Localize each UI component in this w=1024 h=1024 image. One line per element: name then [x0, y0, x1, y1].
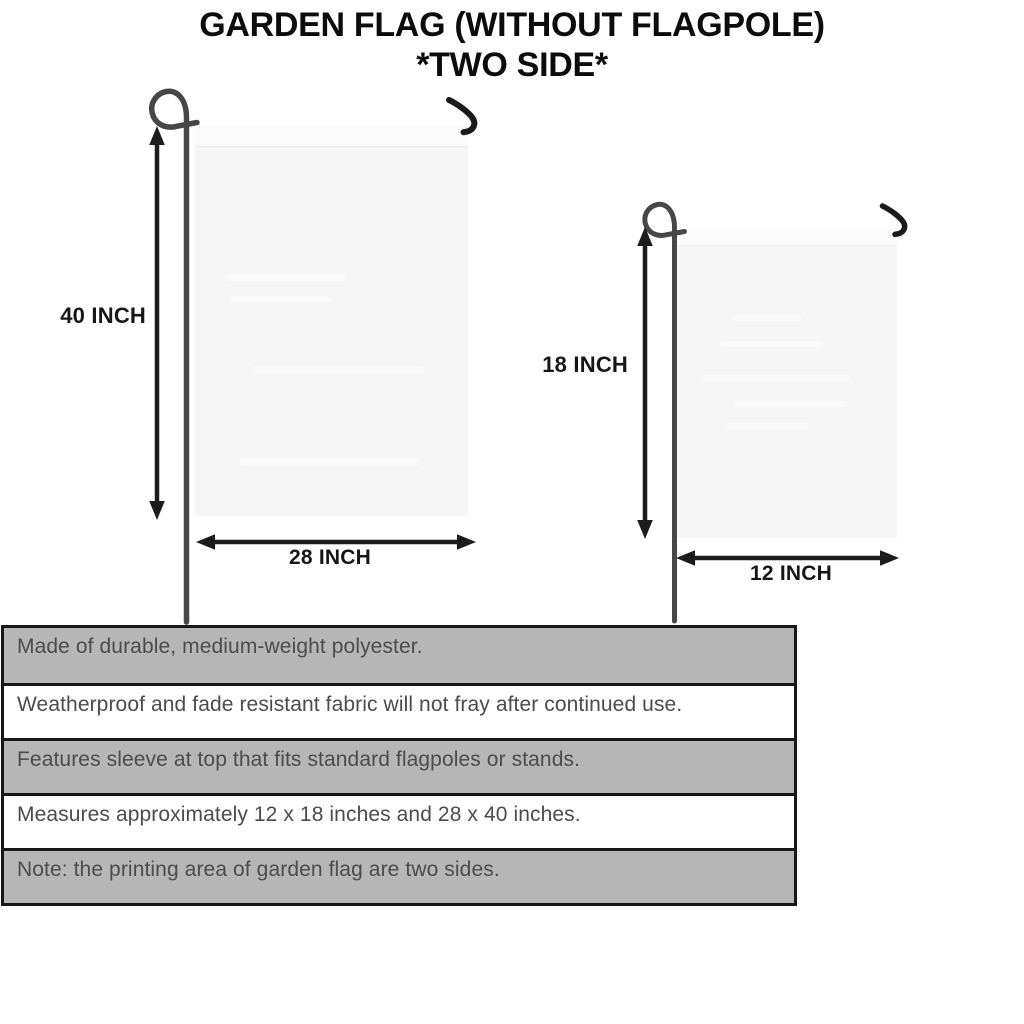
- page-title: GARDEN FLAG (WITHOUT FLAGPOLE) *TWO SIDE…: [0, 5, 1024, 85]
- small-flag-sleeve: [677, 229, 897, 246]
- small-flag: [677, 229, 897, 538]
- feature-row-text: Features sleeve at top that fits standar…: [17, 748, 580, 771]
- large-flag-sleeve: [195, 126, 468, 147]
- large-height-label: 40 INCH: [26, 303, 146, 329]
- flag-print-ghost: [239, 458, 419, 466]
- flag-print-ghost: [253, 366, 425, 373]
- small-width-label: 12 INCH: [691, 562, 891, 586]
- title-line2: *TWO SIDE*: [0, 45, 1024, 85]
- large-flag: [195, 126, 468, 516]
- flag-print-ghost: [701, 375, 851, 381]
- large-height-arrow: [149, 126, 165, 520]
- feature-row-text: Weatherproof and fade resistant fabric w…: [17, 693, 682, 716]
- large-flagpole: [152, 91, 197, 622]
- garden-flag-infographic: GARDEN FLAG (WITHOUT FLAGPOLE) *TWO SIDE…: [0, 0, 1024, 1024]
- flag-print-ghost: [225, 274, 345, 281]
- title-line1: GARDEN FLAG (WITHOUT FLAGPOLE): [0, 5, 1024, 45]
- features-table: Made of durable, medium-weight polyester…: [1, 625, 797, 906]
- feature-row-text: Note: the printing area of garden flag a…: [17, 858, 500, 881]
- feature-row-text: Made of durable, medium-weight polyester…: [17, 635, 423, 658]
- small-height-label: 18 INCH: [518, 352, 628, 378]
- flag-print-ghost: [721, 341, 823, 347]
- feature-row-text: Measures approximately 12 x 18 inches an…: [17, 803, 581, 826]
- small-height-arrow: [637, 227, 653, 539]
- feature-row: Note: the printing area of garden flag a…: [4, 848, 794, 903]
- feature-row: Measures approximately 12 x 18 inches an…: [4, 793, 794, 848]
- large-width-label: 28 INCH: [230, 546, 430, 570]
- flag-print-ghost: [725, 423, 809, 429]
- flag-print-ghost: [231, 296, 331, 302]
- feature-row: Features sleeve at top that fits standar…: [4, 738, 794, 793]
- flag-print-ghost: [732, 315, 802, 321]
- flag-print-ghost: [735, 401, 847, 407]
- feature-row: Weatherproof and fade resistant fabric w…: [4, 683, 794, 738]
- feature-row: Made of durable, medium-weight polyester…: [4, 628, 794, 683]
